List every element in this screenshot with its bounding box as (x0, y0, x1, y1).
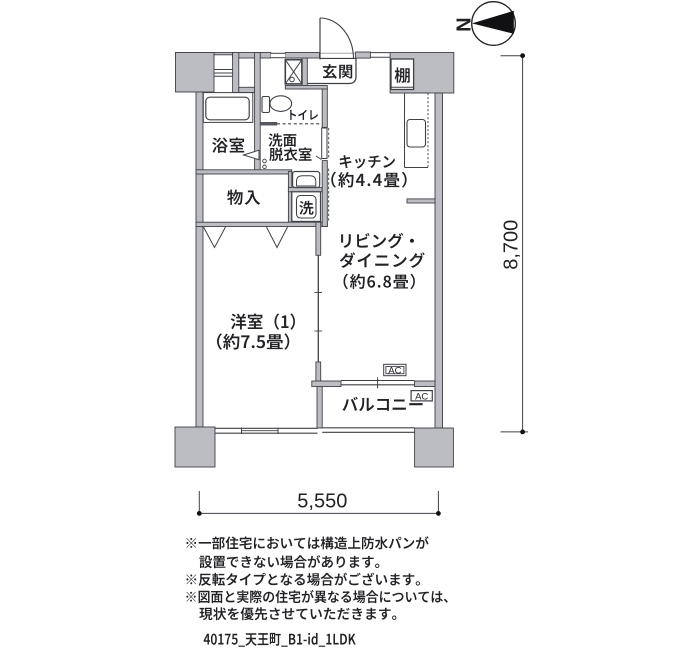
svg-text:5,550: 5,550 (297, 491, 347, 513)
svg-text:AC: AC (415, 391, 428, 402)
svg-text:N: N (453, 17, 475, 31)
svg-text:8,700: 8,700 (501, 220, 523, 270)
svg-text:AC: AC (388, 365, 401, 376)
